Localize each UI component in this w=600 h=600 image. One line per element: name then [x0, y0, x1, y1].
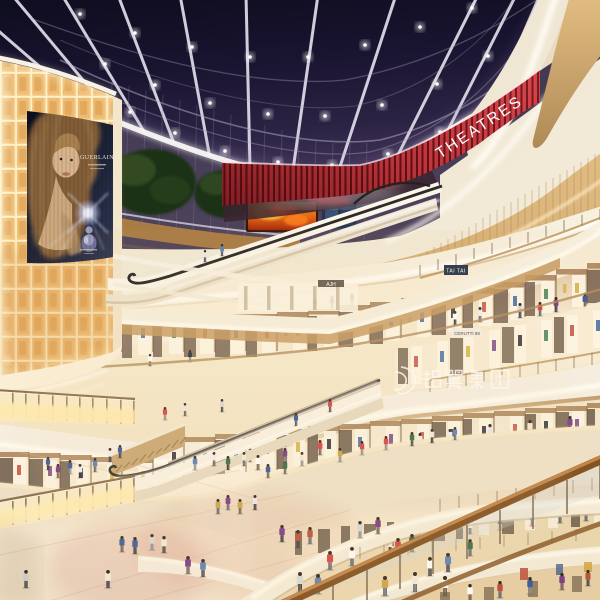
svg-text:GUERLAIN: GUERLAIN [80, 155, 114, 161]
